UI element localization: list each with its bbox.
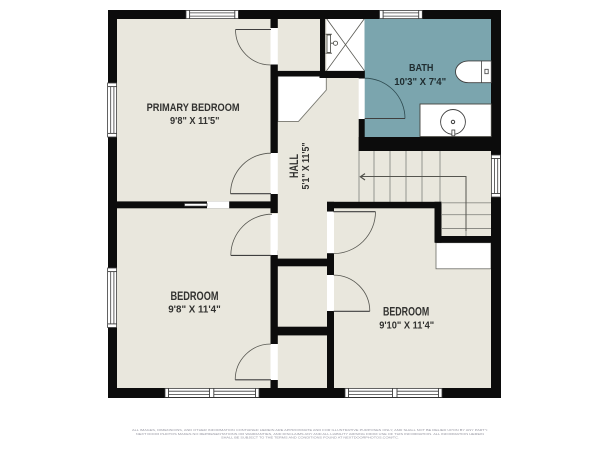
- svg-text:BEDROOM: BEDROOM: [171, 291, 219, 303]
- svg-text:PRIMARY BEDROOM: PRIMARY BEDROOM: [147, 102, 240, 114]
- svg-text:BATH: BATH: [409, 63, 434, 74]
- svg-text:HALL: HALL: [289, 154, 301, 178]
- svg-text:9'10" X 11'4": 9'10" X 11'4": [379, 320, 434, 331]
- svg-text:9'8" X 11'4": 9'8" X 11'4": [168, 304, 221, 315]
- svg-text:9'8" X 11'5": 9'8" X 11'5": [170, 116, 220, 127]
- svg-text:5'1" X 11'5": 5'1" X 11'5": [301, 142, 312, 189]
- svg-text:BEDROOM: BEDROOM: [383, 306, 429, 318]
- svg-text:SHALL BE SUBJECT TO THE TERMS: SHALL BE SUBJECT TO THE TERMS AND CONDIT…: [221, 436, 399, 440]
- svg-text:10'3" X 7'4": 10'3" X 7'4": [394, 77, 446, 88]
